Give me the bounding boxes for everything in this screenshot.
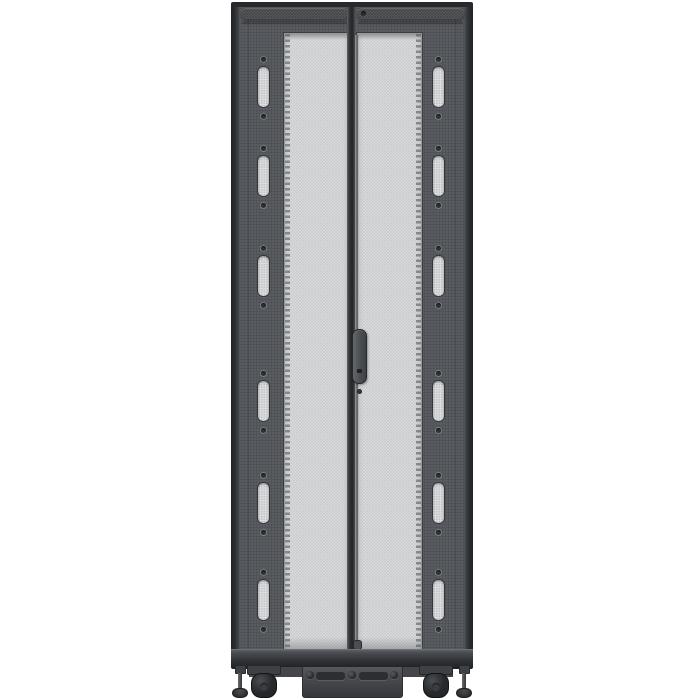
- leveling-foot-right: [456, 665, 472, 700]
- cable-slot-unit: [432, 579, 446, 635]
- cable-access-slot: [432, 380, 445, 422]
- caster-hub-icon: [260, 683, 268, 691]
- screw-hole-icon: [261, 246, 266, 251]
- panel-vent-slot: [359, 672, 388, 680]
- cable-slot-unit: [432, 380, 446, 436]
- left-panel-seam-line: [248, 10, 249, 650]
- cable-slot-unit: [432, 255, 446, 311]
- screw-hole-icon: [436, 428, 441, 433]
- screw-hole-icon: [261, 57, 266, 62]
- handle-release-notch: [357, 369, 362, 373]
- screw-hole-icon: [436, 57, 441, 62]
- screw-hole-icon: [436, 473, 441, 478]
- screw-hole-icon: [436, 371, 441, 376]
- leveling-foot-left: [232, 665, 248, 700]
- cable-slot-column-right: [432, 4, 446, 654]
- cable-slot-unit: [257, 155, 271, 211]
- cable-slot-unit: [257, 255, 271, 311]
- panel-bolt-icon: [306, 671, 314, 679]
- screw-hole-icon: [261, 371, 266, 376]
- screw-hole-icon: [261, 428, 266, 433]
- caster-left: [247, 665, 281, 700]
- panel-bolt-icon: [390, 671, 398, 679]
- mesh-door-panel-left: [284, 33, 349, 654]
- screw-hole-icon: [261, 303, 266, 308]
- cable-access-slot: [257, 380, 270, 422]
- foot-base-pad: [232, 688, 248, 698]
- top-recess-groove-right: [358, 21, 463, 25]
- rack-right-edge: [464, 7, 473, 651]
- screw-hole-icon: [261, 114, 266, 119]
- server-rack: [231, 2, 473, 700]
- cable-access-slot: [257, 579, 270, 621]
- foot-threaded-stem: [462, 673, 466, 689]
- cable-slot-unit: [257, 579, 271, 635]
- panel-bolt-icon: [348, 671, 356, 679]
- screw-hole-icon: [261, 627, 266, 632]
- screw-hole-icon: [436, 203, 441, 208]
- screw-hole-icon: [436, 114, 441, 119]
- screw-hole-icon: [436, 627, 441, 632]
- screw-hole-icon: [436, 303, 441, 308]
- mesh-top-shadow: [358, 34, 421, 40]
- cable-access-slot: [432, 579, 445, 621]
- foot-threaded-stem: [238, 673, 242, 689]
- cable-slot-unit: [257, 66, 271, 122]
- door-handle: [352, 329, 367, 384]
- rack-left-edge: [231, 7, 240, 651]
- cable-slot-column-left: [257, 4, 271, 654]
- screw-hole-icon: [261, 570, 266, 575]
- screw-hole-icon: [261, 203, 266, 208]
- cable-access-slot: [432, 66, 445, 108]
- mesh-top-shadow: [285, 34, 348, 40]
- cable-slot-unit: [257, 482, 271, 538]
- right-panel-seam-line: [455, 10, 456, 650]
- cable-access-slot: [257, 66, 270, 108]
- screw-hole-icon: [436, 530, 441, 535]
- cable-slot-unit: [432, 482, 446, 538]
- bottom-center-access-panel: [302, 667, 403, 698]
- product-photo-background: [0, 0, 700, 700]
- cable-access-slot: [257, 255, 270, 297]
- cable-slot-unit: [432, 155, 446, 211]
- lock-hole-icon: [361, 11, 366, 16]
- screw-hole-icon: [436, 146, 441, 151]
- top-vent-strip-right: [357, 8, 464, 19]
- screw-hole-icon: [261, 530, 266, 535]
- cable-access-slot: [257, 155, 270, 197]
- screw-hole-icon: [436, 570, 441, 575]
- screw-hole-icon: [261, 146, 266, 151]
- foot-base-pad: [456, 688, 472, 698]
- screw-hole-icon: [261, 473, 266, 478]
- perforation-edge-column: [285, 34, 290, 653]
- cable-access-slot: [257, 482, 270, 524]
- cable-slot-unit: [257, 380, 271, 436]
- screw-hole-icon: [436, 246, 441, 251]
- caster-right: [419, 665, 453, 700]
- cable-access-slot: [432, 155, 445, 197]
- cable-access-slot: [432, 482, 445, 524]
- panel-vent-slot: [316, 672, 345, 680]
- cable-slot-unit: [432, 66, 446, 122]
- perforation-edge-column: [416, 34, 421, 653]
- cable-access-slot: [432, 255, 445, 297]
- keyhole-icon: [357, 389, 362, 394]
- caster-hub-icon: [432, 683, 440, 691]
